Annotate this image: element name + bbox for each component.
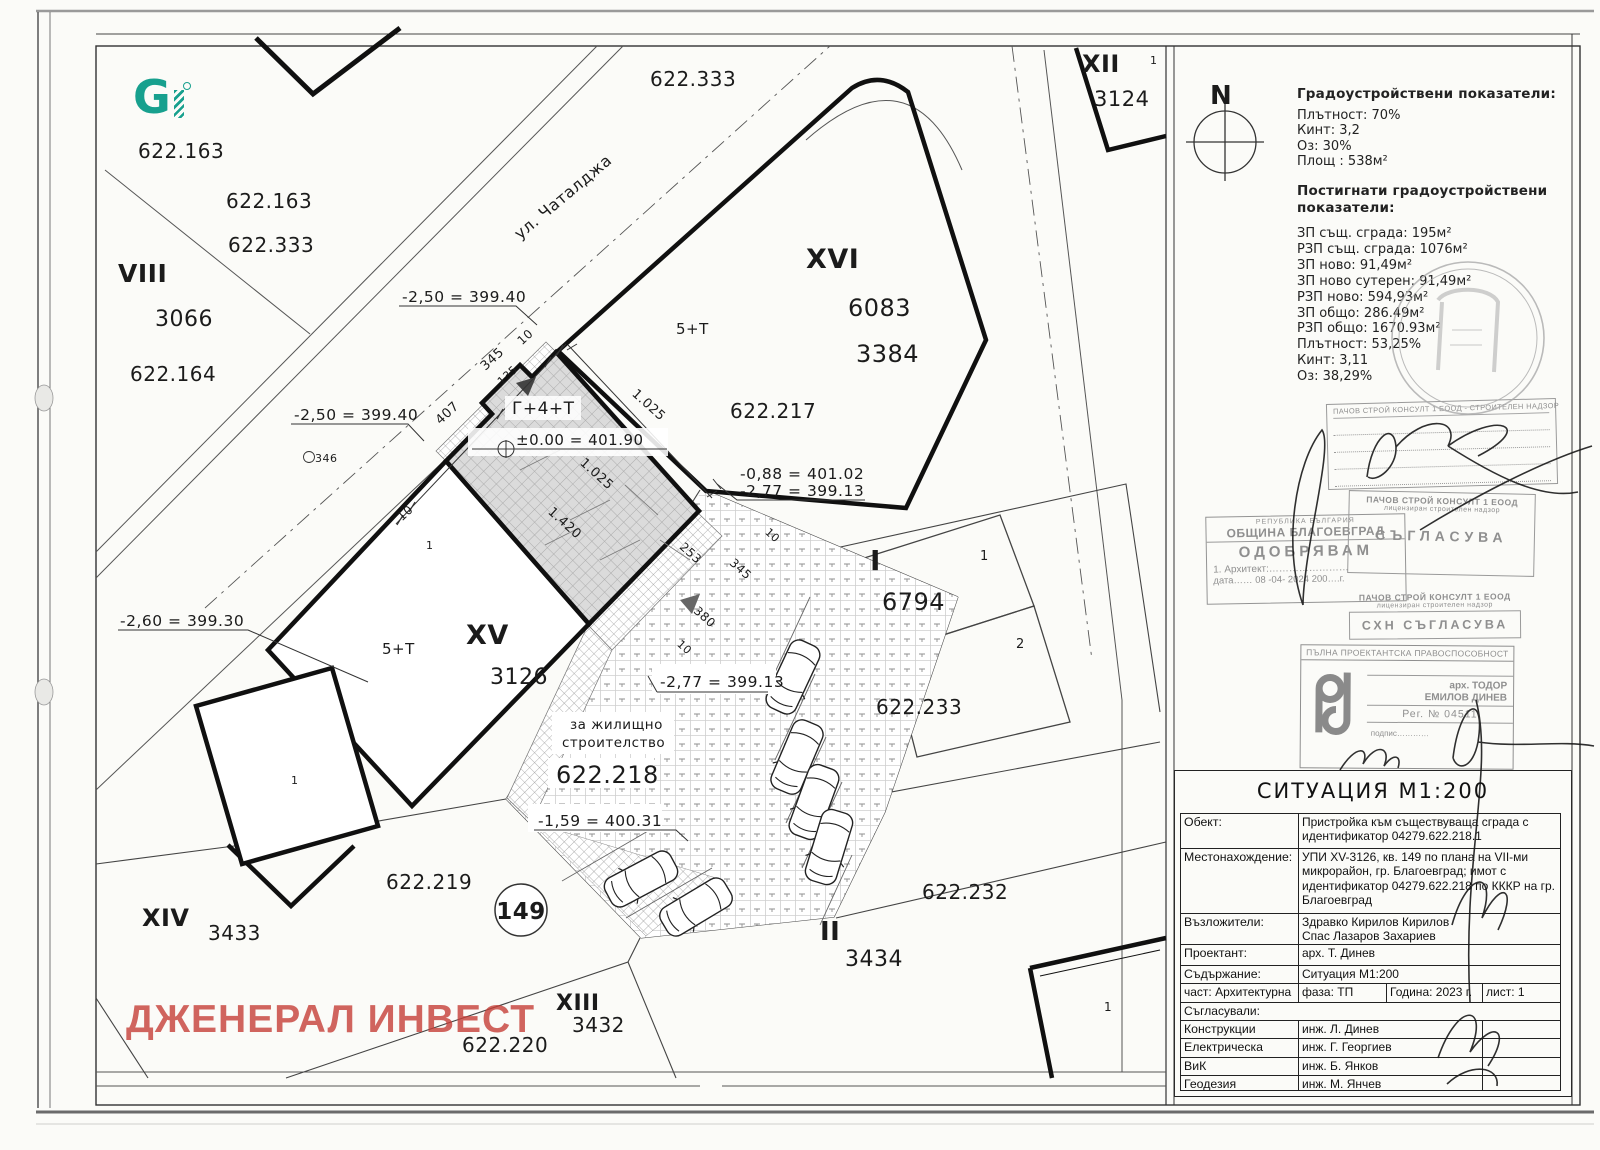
existing-building-sw <box>196 668 378 864</box>
sidewalk-band <box>436 342 556 461</box>
achieved-line: Плътност: 53,25% <box>1297 337 1471 353</box>
street-name-label: ул. Чаталджа <box>510 151 615 244</box>
indicator-line: Плътност: 70% <box>1297 108 1400 123</box>
table-row: Проектант: арх. Т. Динев <box>1181 944 1560 966</box>
title-block: СИТУАЦИЯ М1:200 Обект: Пристройка към съ… <box>1174 770 1572 1097</box>
new-building-label: Г+4+Т <box>512 399 575 419</box>
indicators-title: Градоустройствени показатели: <box>1297 86 1556 102</box>
label-backings <box>468 396 776 832</box>
achieved-line: Оз: 38,29% <box>1297 369 1471 385</box>
gi-logo-letter: G <box>133 74 171 120</box>
elevation-label: -2,50 = 399.40 <box>402 288 526 306</box>
table-row: Електрическа инж. Г. Георгиев <box>1181 1038 1560 1057</box>
street-lines <box>96 46 1166 1086</box>
dimension-label: 1.420 <box>545 505 585 543</box>
dimension-label: 10 <box>674 638 694 658</box>
dimension-label: 253 <box>677 540 705 567</box>
north-symbol-icon <box>1186 103 1264 181</box>
drawing-title: СИТУАЦИЯ М1:200 <box>1175 779 1571 803</box>
survey-point-label: 346 <box>315 452 338 465</box>
achieved-line: Кинт: 3,11 <box>1297 353 1471 369</box>
table-row: Обект: Пристройка към съществуваща сград… <box>1181 814 1560 848</box>
stamp-dotted-row <box>1334 447 1550 470</box>
site-plan-sheet: G Градоустройствени показатели: Плътност… <box>0 0 1600 1150</box>
entrance-arrow-icon <box>680 594 700 614</box>
punch-hole <box>35 385 53 411</box>
map-label: XIV <box>142 904 190 932</box>
agreement-stamp-2: ПАЧОВ СТРОЙ КОНСУЛТ 1 ЕООД лицензиран ст… <box>1349 591 1521 650</box>
watermark: ДЖЕНЕРАЛ ИНВЕСТ <box>126 998 535 1042</box>
dimension-label: 407 <box>433 399 462 428</box>
map-label: 622.333 <box>228 233 314 257</box>
supervision-stamp: ПАЧОВ СТРОЙ КОНСУЛТ 1 ЕООД - СТРОИТЕЛЕН … <box>1326 398 1558 490</box>
block-number-label: 149 <box>496 899 546 925</box>
map-label: 1 <box>1104 1000 1112 1014</box>
dimension-label: 1.025 <box>629 387 669 425</box>
sketch-marks <box>520 450 690 560</box>
map-label: VIII <box>118 259 167 288</box>
map-labels: 622.163 622.163 622.333 VIII 3066 622.16… <box>118 50 1232 1057</box>
indicator-line: Оз: 30% <box>1297 139 1400 154</box>
north-label: N <box>1210 81 1232 111</box>
kab-blank-row <box>1367 661 1513 677</box>
title-block-table: Обект: Пристройка към съществуваща сград… <box>1180 813 1561 1091</box>
map-label: 6794 <box>882 588 945 616</box>
map-label: строителство <box>562 735 665 751</box>
map-label: 622.232 <box>922 880 1008 904</box>
indicator-line: Площ : 538м² <box>1297 154 1400 169</box>
level-label: ±0.00 = 401.90 <box>516 431 644 449</box>
map-label: 1 <box>1150 54 1158 67</box>
elevation-label: -0,88 = 401.02 <box>740 465 864 483</box>
architect-reg-number: Рег. № 04511 <box>1367 706 1513 724</box>
achieved-list: ЗП същ. сграда: 195м² РЗП същ. сграда: 1… <box>1297 226 1471 385</box>
new-building <box>446 352 699 624</box>
table-row: Съгласували: <box>1181 1002 1560 1020</box>
map-label: 5+Т <box>382 640 415 658</box>
map-label: 622.333 <box>650 67 736 91</box>
indicators-list: Плътност: 70% Кинт: 3,2 Оз: 30% Площ : 5… <box>1297 108 1400 170</box>
achieved-line: ЗП ново: 91,49м² <box>1297 258 1471 274</box>
map-label: 3433 <box>208 921 261 945</box>
map-label: 3066 <box>155 307 213 332</box>
map-label: 622.233 <box>876 695 962 719</box>
achieved-line: РЗП ново: 594,93м² <box>1297 290 1471 306</box>
signature-label: подпис………… <box>1367 723 1513 739</box>
map-label: I <box>870 544 881 577</box>
map-label: 622.163 <box>226 189 312 213</box>
dimension-label: 10 <box>395 502 416 523</box>
architect-license-stamp: ПЪЛНА ПРОЕКТАНТСКА ПРАВОСПОСОБНОСТ арх. … <box>1300 644 1515 769</box>
map-label: XVI <box>806 244 859 275</box>
parking-area <box>506 489 958 943</box>
achieved-line: РЗП общо: 1670.93м² <box>1297 321 1471 337</box>
municipality-approval-stamp: РЕПУБЛИКА БЪЛГАРИЯ ОБЩИНА БЛАГОЕВГРАД ОД… <box>1205 513 1407 604</box>
map-label: 2 <box>1016 637 1025 652</box>
table-row: Геодезия инж. М. Янчев <box>1181 1075 1560 1090</box>
dimension-label: 10 <box>762 526 782 546</box>
block-number-circle <box>495 884 547 936</box>
map-label: 5+Т <box>676 320 709 338</box>
more-leaders <box>304 440 769 936</box>
map-label: 622.217 <box>730 399 816 423</box>
dimension-lines <box>118 306 865 682</box>
table-row: Възложители: Здравко Кирилов Кирилов Спа… <box>1181 913 1560 944</box>
dimension-label: 345 <box>478 345 507 374</box>
table-row: Местонахождение: УПИ XV-3126, кв. 149 по… <box>1181 848 1560 913</box>
existing-building-xv <box>268 461 589 806</box>
gi-logo-i-icon <box>174 90 184 118</box>
achieved-line: РЗП същ. сграда: 1076м² <box>1297 242 1471 258</box>
stamp-company-line: ПАЧОВ СТРОЙ КОНСУЛТ 1 ЕООД - СТРОИТЕЛЕН … <box>1333 401 1549 419</box>
achieved-line: ЗП същ. сграда: 195м² <box>1297 226 1471 242</box>
elevation-label: -2,60 = 399.30 <box>120 612 244 630</box>
achieved-title: Постигнати градоустройствени показатели: <box>1297 183 1547 217</box>
map-label: 3434 <box>845 947 903 972</box>
punch-hole <box>35 679 53 705</box>
map-label: 6083 <box>848 294 911 322</box>
dimension-label: 380 <box>691 604 719 631</box>
dimension-label: 135 <box>495 363 520 388</box>
map-label: 3126 <box>490 665 548 690</box>
stamp-dotted-row <box>1335 464 1551 487</box>
elevation-label: -1,59 = 400.31 <box>538 812 662 830</box>
parked-cars <box>599 635 859 943</box>
entrance-arrow-icon <box>516 377 536 396</box>
agreement-stamp-1: ПАЧОВ СТРОЙ КОНСУЛТ 1 ЕООД лицензиран ст… <box>1347 490 1536 577</box>
indicator-line: Кинт: 3,2 <box>1297 123 1400 138</box>
table-row: Съдържание: Ситуация М1:200 <box>1181 965 1560 983</box>
dimension-label: 345 <box>727 556 755 583</box>
map-label: XIII <box>556 991 600 1016</box>
map-label: 3124 <box>1094 87 1149 111</box>
map-label: 1 <box>980 549 989 564</box>
dimension-label: 1.025 <box>577 456 617 494</box>
map-label: XII <box>1082 50 1120 78</box>
dimension-label: 10 <box>515 326 536 347</box>
map-label: 622.163 <box>138 139 224 163</box>
map-label: за жилищно <box>570 717 663 733</box>
table-row: ВиК инж. Б. Янков <box>1181 1057 1560 1075</box>
stamp-dotted-row <box>1333 413 1549 436</box>
map-label: 622.164 <box>130 362 216 386</box>
map-label: 3384 <box>856 340 919 368</box>
street-centerline <box>205 46 830 608</box>
map-label: 622.218 <box>556 761 659 789</box>
achieved-line: ЗП общо: 286.49м² <box>1297 306 1471 322</box>
map-label: 1 <box>291 774 299 787</box>
elevation-label: -2,77 = 399.13 <box>740 482 864 500</box>
elevation-label: -2,77 = 399.13 <box>660 673 784 691</box>
stamp-dotted-row <box>1334 430 1550 453</box>
map-label: II <box>820 917 840 947</box>
map-label: 1 <box>426 539 434 552</box>
level-mark-icon <box>498 441 514 457</box>
plot-xvi-boundary <box>228 28 1166 1078</box>
gi-logo: G <box>133 74 184 120</box>
kab-monogram-icon <box>1301 660 1368 749</box>
buildings <box>196 342 700 864</box>
map-label: 3432 <box>572 1013 625 1037</box>
table-row-meta: част: Архитектурна фаза: ТП Година: 2023… <box>1181 983 1560 1002</box>
map-label: 622.219 <box>386 870 472 894</box>
architect-name: арх. ТОДОР ЕМИЛОВ ДИНЕВ <box>1367 676 1513 707</box>
plot-boundaries <box>96 484 1166 1078</box>
table-row: Конструкции инж. Л. Динев <box>1181 1020 1560 1038</box>
map-label: XV <box>466 620 509 651</box>
survey-point-icon <box>304 452 315 463</box>
parking-stall-lines <box>562 597 852 925</box>
achieved-line: ЗП ново сутерен: 91,49м² <box>1297 274 1471 290</box>
elevation-label: -2,50 = 399.40 <box>294 406 418 424</box>
